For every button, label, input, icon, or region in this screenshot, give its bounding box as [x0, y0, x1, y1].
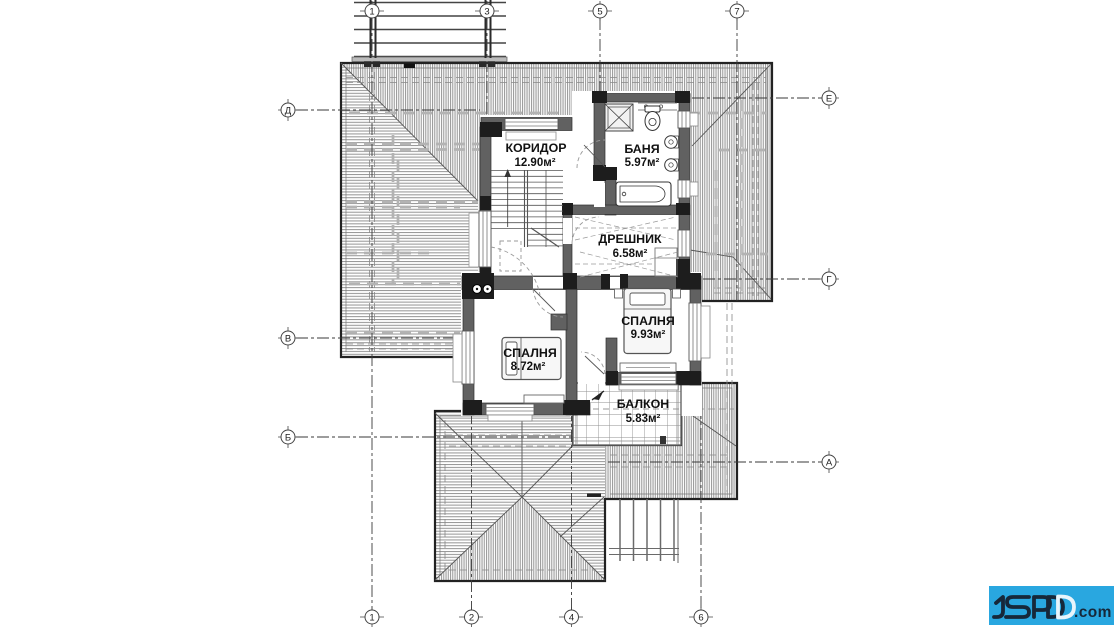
svg-text:5.97м²: 5.97м² [625, 157, 660, 169]
svg-text:БАНЯ: БАНЯ [624, 142, 659, 156]
svg-text:2: 2 [469, 613, 474, 624]
svg-text:9.93м²: 9.93м² [631, 329, 666, 341]
svg-text:Е: Е [826, 94, 832, 105]
svg-text:СПАЛНЯ: СПАЛНЯ [621, 314, 675, 328]
svg-text:Д: Д [285, 106, 292, 117]
svg-text:5: 5 [597, 7, 602, 18]
svg-text:1: 1 [369, 7, 374, 18]
svg-text:Б: Б [285, 433, 291, 444]
svg-text:.com: .com [1074, 604, 1112, 621]
svg-text:А: А [826, 458, 833, 469]
svg-text:6: 6 [698, 613, 703, 624]
svg-text:СПАЛНЯ: СПАЛНЯ [503, 346, 557, 360]
svg-text:5.83м²: 5.83м² [626, 413, 661, 425]
svg-text:КОРИДОР: КОРИДОР [505, 141, 566, 155]
svg-text:7: 7 [734, 7, 739, 18]
svg-text:ДРЕШНИК: ДРЕШНИК [598, 232, 662, 246]
svg-text:4: 4 [569, 613, 574, 624]
svg-text:6.58м²: 6.58м² [613, 248, 648, 260]
svg-text:12.90м²: 12.90м² [514, 157, 555, 169]
svg-text:В: В [285, 334, 291, 345]
svg-text:БАЛКОН: БАЛКОН [617, 397, 669, 411]
svg-text:8.72м²: 8.72м² [511, 361, 546, 373]
svg-text:1: 1 [369, 613, 374, 624]
svg-text:Г: Г [826, 275, 831, 286]
svg-text:3: 3 [484, 7, 489, 18]
